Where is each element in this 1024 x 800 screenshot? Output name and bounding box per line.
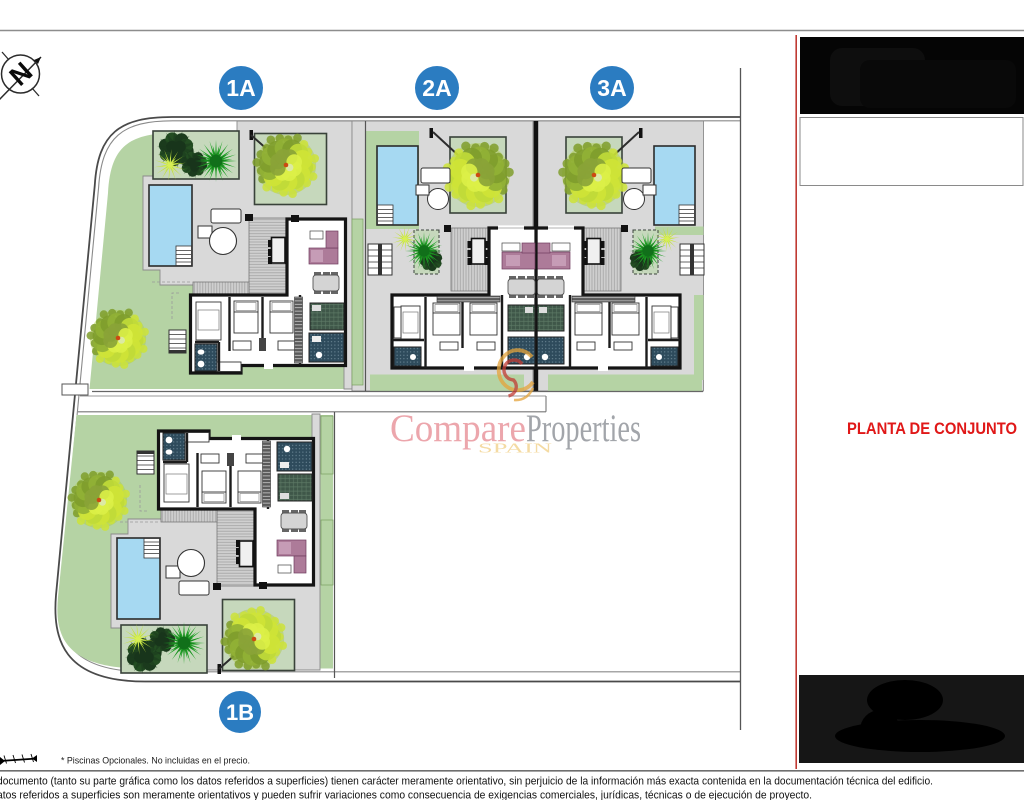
svg-text:* Piscinas Opcionales. No incl: * Piscinas Opcionales. No incluidas en e… <box>61 756 250 767</box>
svg-text:1A: 1A <box>226 75 255 101</box>
svg-text:3A: 3A <box>597 75 626 101</box>
svg-text:atos referidos a superficies s: atos referidos a superficies son meramen… <box>0 790 812 800</box>
svg-text:SPAIN: SPAIN <box>478 441 552 456</box>
svg-text:2A: 2A <box>422 75 451 101</box>
svg-text:1B: 1B <box>226 700 254 725</box>
svg-text:documento (tanto su parte gráf: documento (tanto su parte gráfica como l… <box>0 776 933 788</box>
svg-text:PLANTA DE CONJUNTO: PLANTA DE CONJUNTO <box>847 420 1017 438</box>
